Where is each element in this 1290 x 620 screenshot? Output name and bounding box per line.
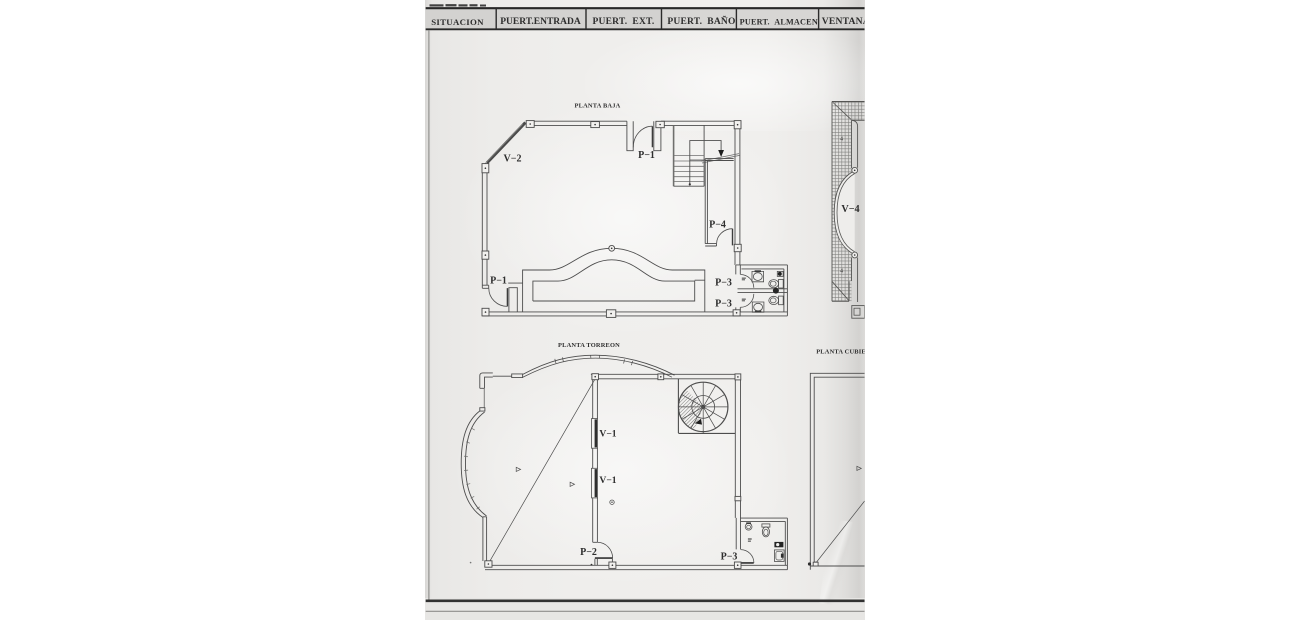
svg-text:VENTANA: VENTANA bbox=[822, 16, 870, 27]
svg-text:V−1: V−1 bbox=[599, 429, 616, 440]
svg-text:PLANTA TORREON: PLANTA TORREON bbox=[558, 342, 620, 349]
svg-text:P−1: P−1 bbox=[638, 150, 655, 161]
svg-text:SITUACION: SITUACION bbox=[431, 17, 484, 27]
svg-text:P−3: P−3 bbox=[715, 278, 732, 289]
svg-text:PLANTA BAJA: PLANTA BAJA bbox=[575, 103, 621, 110]
svg-text:P−3: P−3 bbox=[715, 299, 732, 310]
svg-text:P−4: P−4 bbox=[709, 220, 726, 231]
svg-text:PUERT.ENTRADA: PUERT.ENTRADA bbox=[500, 17, 581, 27]
svg-text:V−1: V−1 bbox=[599, 475, 616, 486]
svg-text:P−2: P−2 bbox=[580, 547, 597, 558]
svg-text:P−1: P−1 bbox=[490, 276, 507, 287]
svg-text:PLANTA CUBIERTA: PLANTA CUBIERTA bbox=[816, 349, 879, 356]
svg-text:V−2: V−2 bbox=[504, 154, 522, 165]
svg-text:V−4: V−4 bbox=[841, 204, 859, 215]
svg-text:PUERT. BAÑO: PUERT. BAÑO bbox=[667, 15, 735, 27]
svg-text:PUERT. ALMACEN: PUERT. ALMACEN bbox=[740, 17, 818, 26]
svg-text:PUERT. EXT.: PUERT. EXT. bbox=[593, 17, 655, 27]
svg-text:4: 4 bbox=[840, 137, 843, 143]
svg-text:P−3: P−3 bbox=[721, 552, 738, 563]
svg-text:4: 4 bbox=[840, 269, 843, 275]
